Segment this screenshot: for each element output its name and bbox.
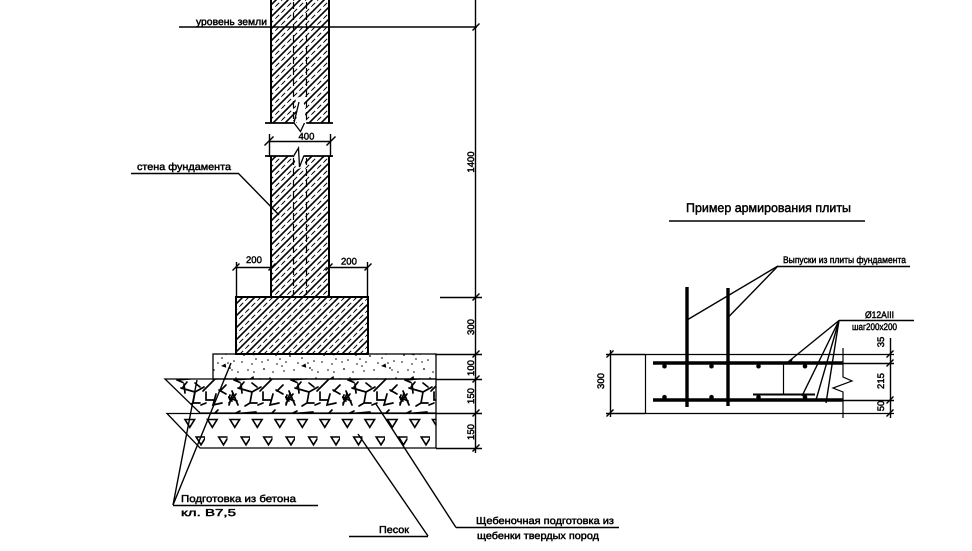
svg-text:150: 150 [466, 388, 477, 404]
svg-text:кл. В7,5: кл. В7,5 [181, 508, 237, 519]
svg-text:100: 100 [466, 360, 477, 376]
svg-text:200: 200 [246, 255, 262, 266]
svg-text:150: 150 [466, 424, 477, 440]
svg-text:35: 35 [876, 337, 887, 348]
svg-text:Подготовка из бетона: Подготовка из бетона [181, 494, 296, 505]
svg-text:щебенки твердых пород: щебенки твердых пород [477, 531, 599, 542]
svg-text:1400: 1400 [466, 151, 477, 172]
svg-text:200: 200 [341, 257, 357, 268]
svg-text:50: 50 [876, 401, 887, 412]
svg-text:215: 215 [876, 373, 887, 389]
svg-text:300: 300 [466, 319, 477, 335]
svg-text:Щебеночная подготовка из: Щебеночная подготовка из [476, 516, 614, 527]
svg-text:Ø12АIII: Ø12АIII [865, 310, 894, 321]
svg-text:Пример армирования плиты: Пример армирования плиты [686, 201, 851, 215]
svg-text:Выпуски из плиты фундамента: Выпуски из плиты фундамента [783, 255, 907, 266]
svg-text:шаг200х200: шаг200х200 [852, 322, 897, 333]
svg-text:Песок: Песок [379, 525, 410, 536]
svg-text:стена фундамента: стена фундамента [137, 162, 231, 173]
svg-text:300: 300 [596, 373, 607, 389]
